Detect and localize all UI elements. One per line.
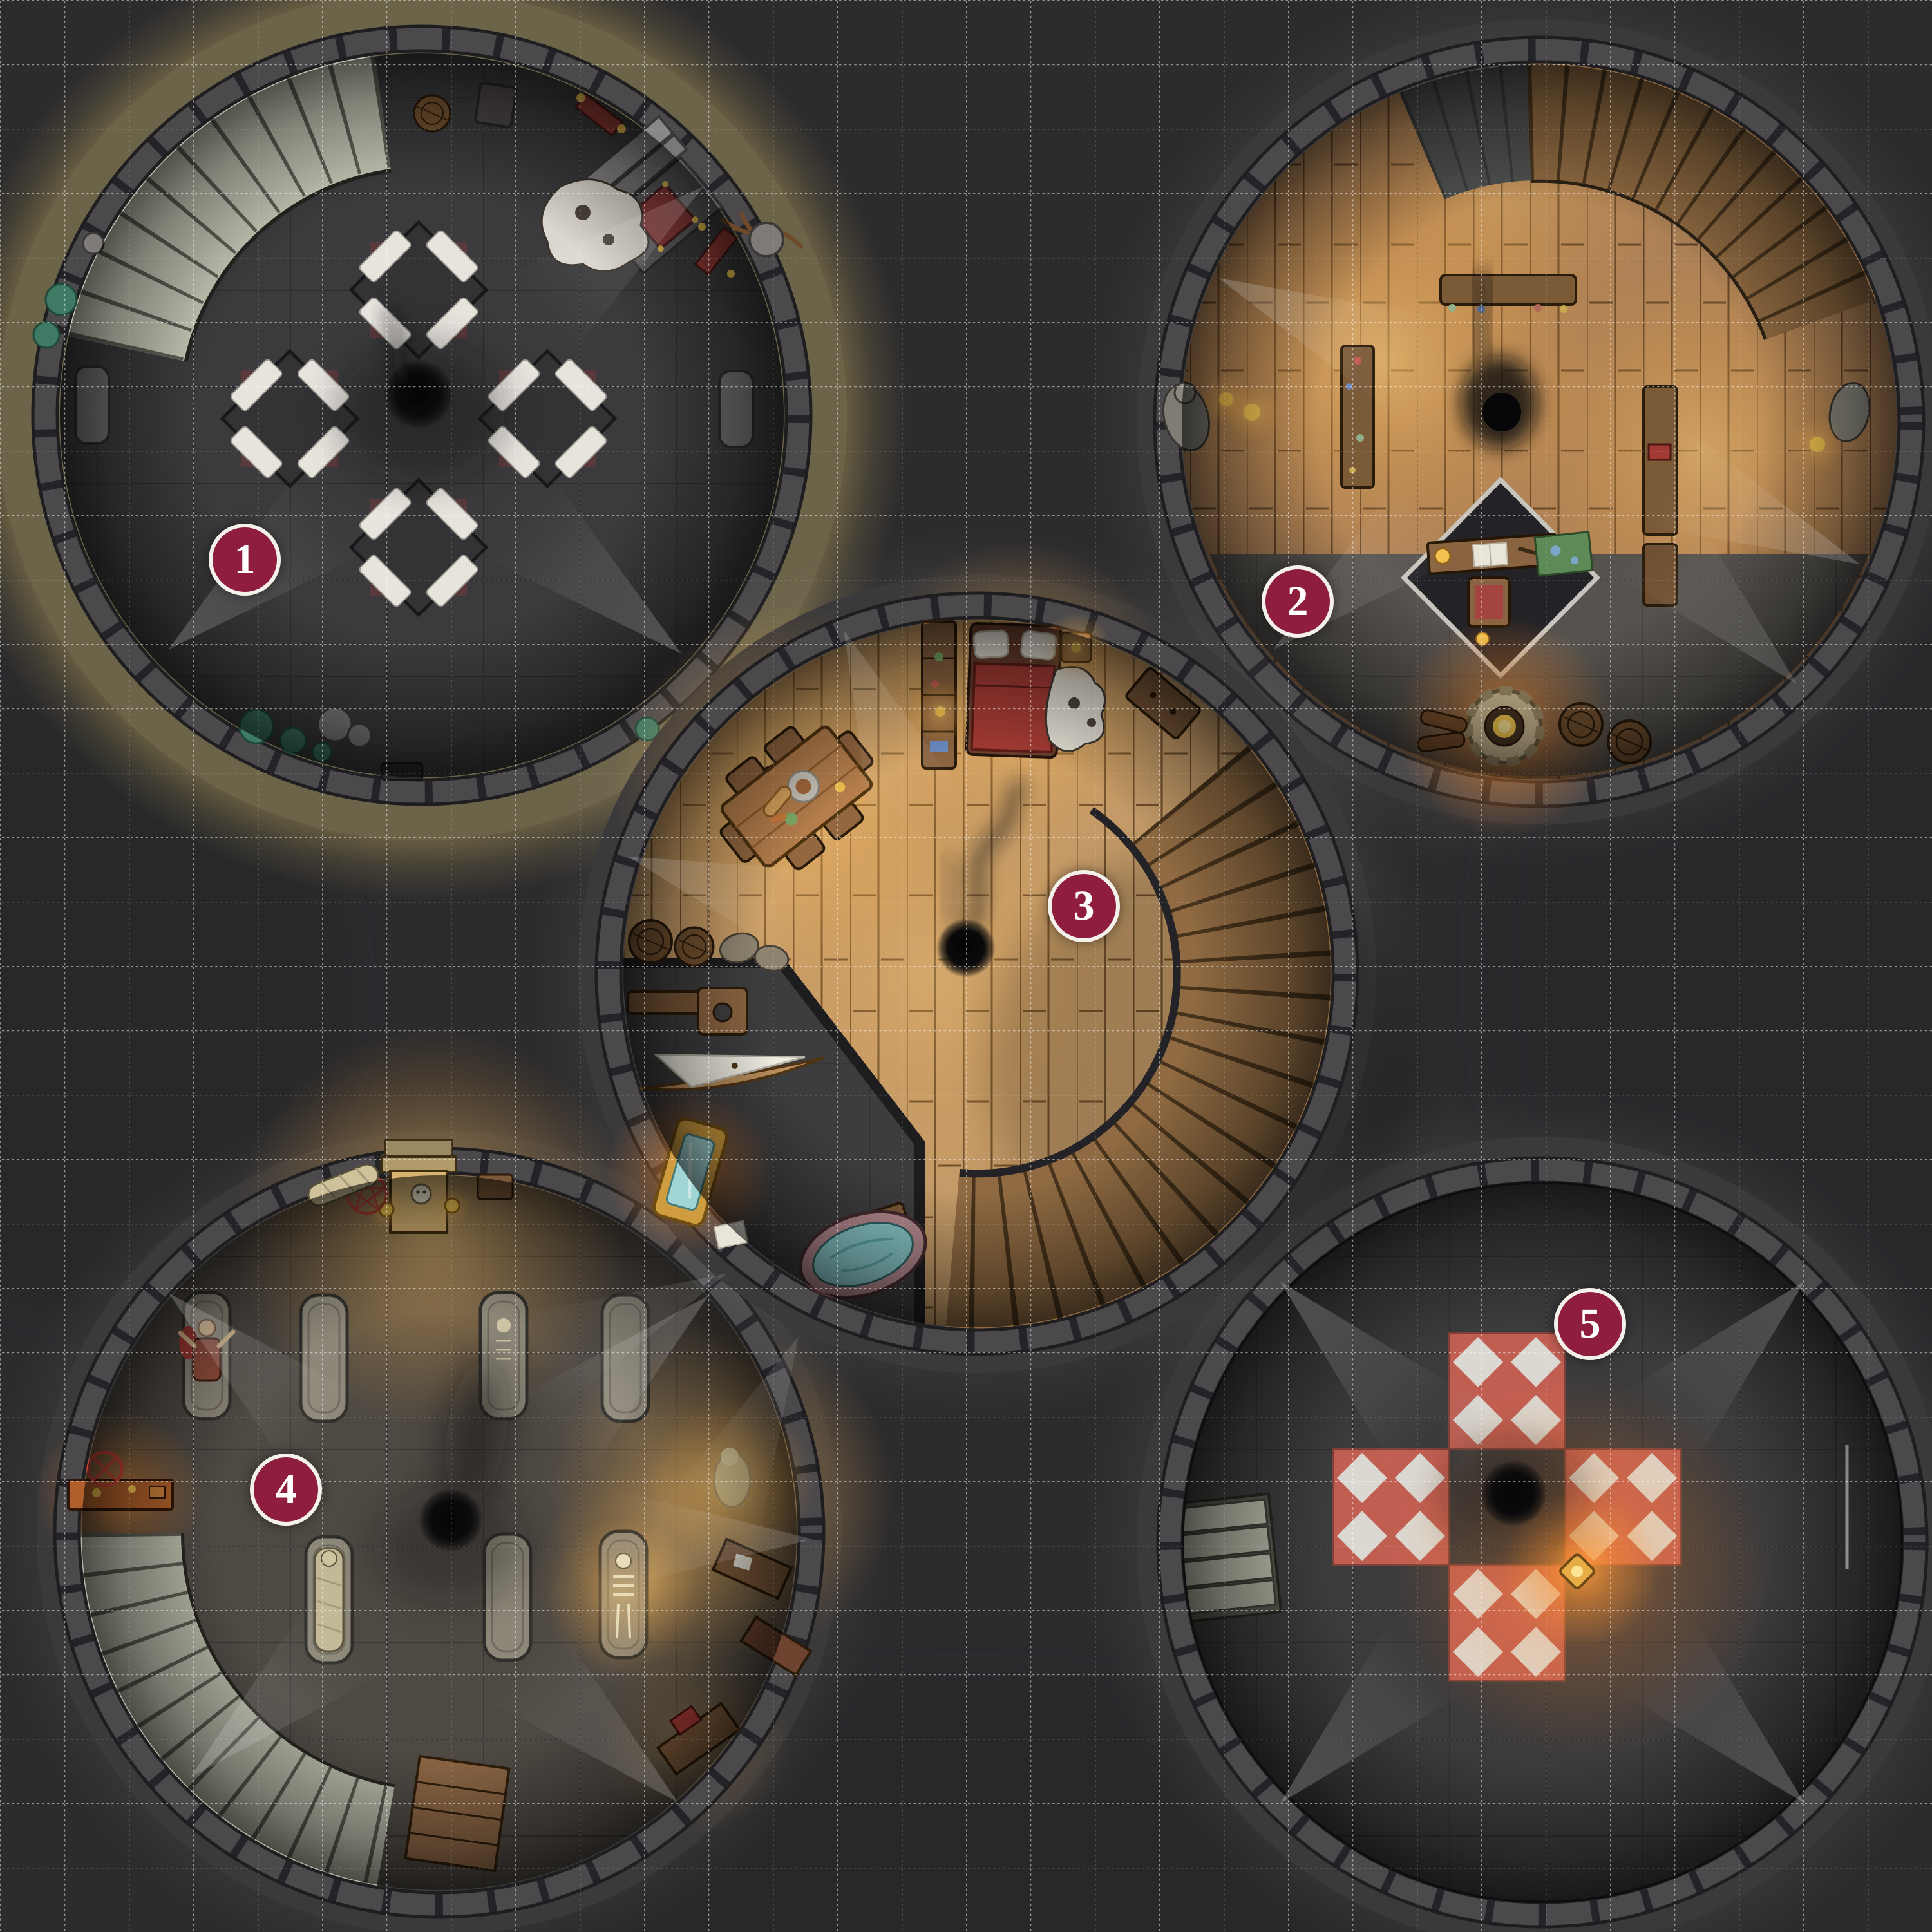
room-marker-5-label: 5: [1580, 1303, 1601, 1345]
room-marker-4[interactable]: 4: [250, 1454, 322, 1526]
room-marker-2[interactable]: 2: [1262, 565, 1334, 638]
room-marker-1[interactable]: 1: [209, 524, 281, 596]
room-marker-4-label: 4: [276, 1468, 297, 1511]
room-marker-3[interactable]: 3: [1048, 870, 1120, 942]
battle-map: 1 2 3 4 5: [0, 0, 1932, 1932]
room-marker-2-label: 2: [1287, 580, 1309, 623]
room-marker-3-label: 3: [1074, 885, 1095, 927]
room-marker-1-label: 1: [234, 538, 256, 581]
room-marker-5[interactable]: 5: [1554, 1288, 1626, 1360]
grid-overlay: [0, 0, 1932, 1932]
battle-map-art: [0, 0, 1932, 1932]
